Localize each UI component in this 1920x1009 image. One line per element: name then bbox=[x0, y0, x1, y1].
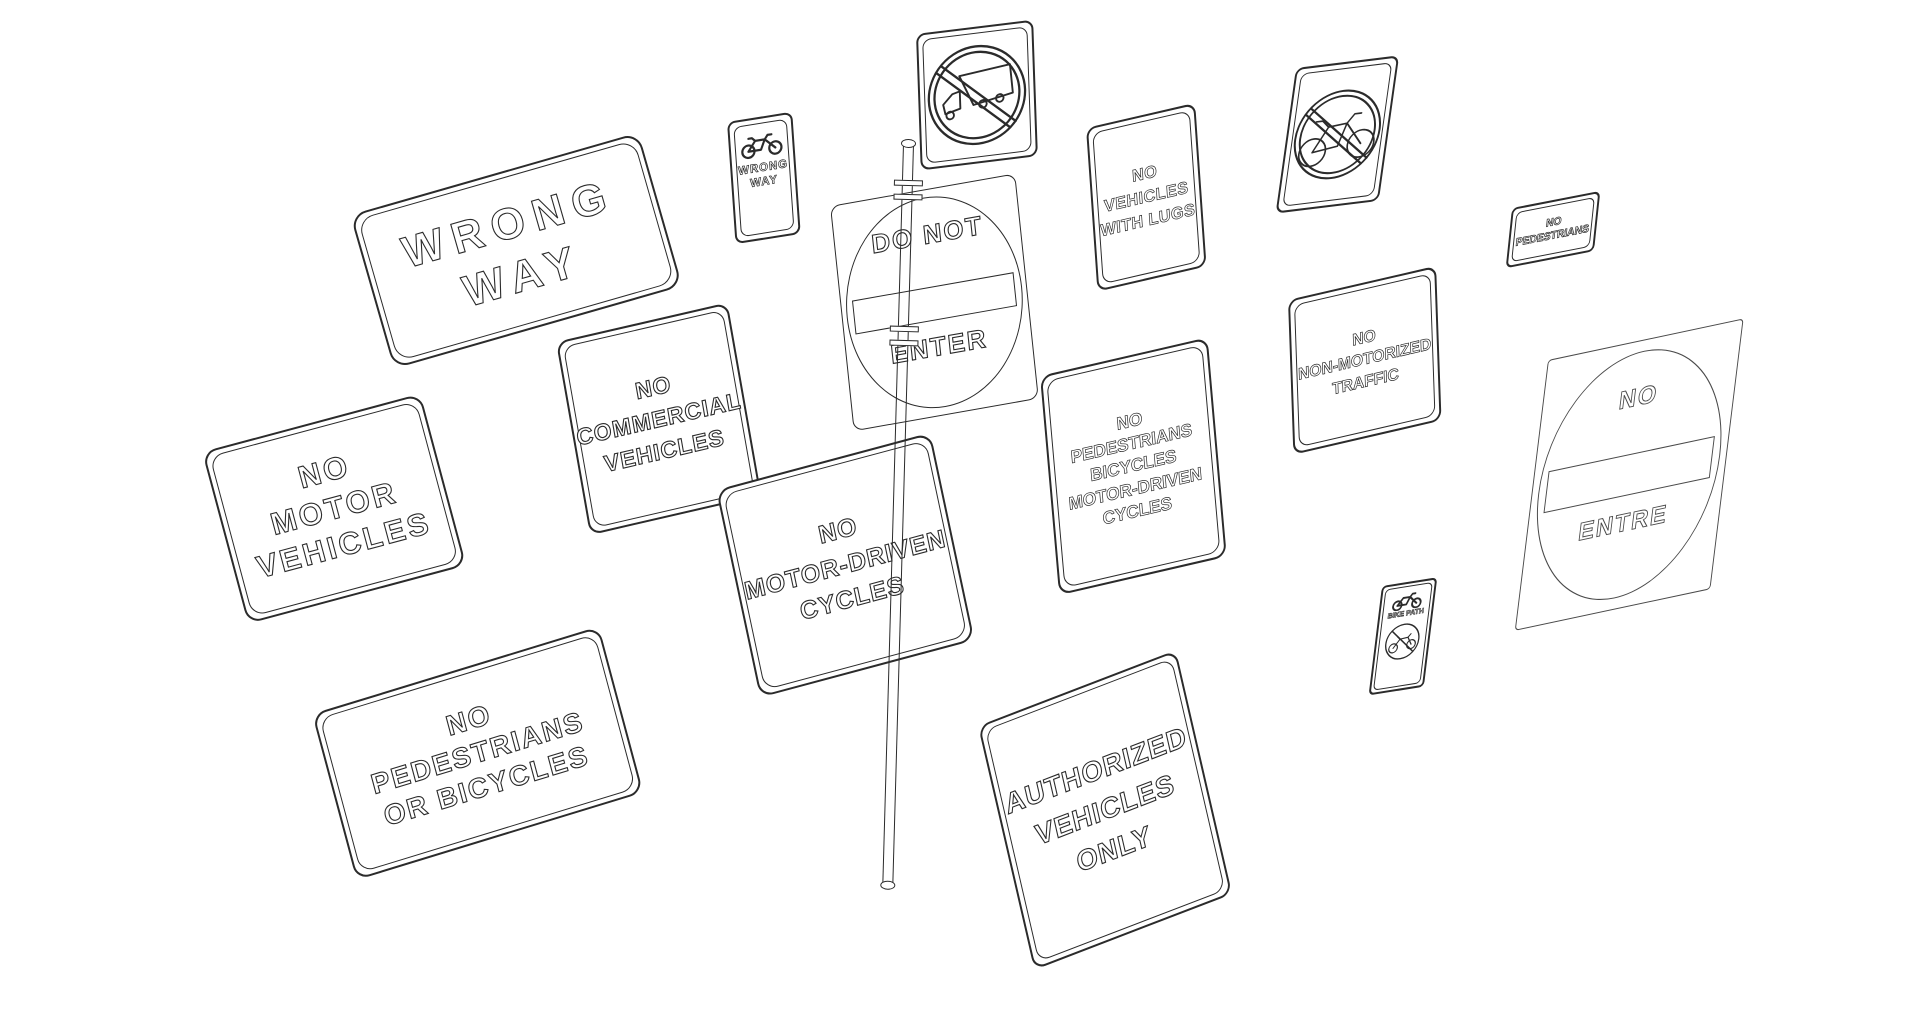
sign-no-pedestrians: NO PEDESTRIANS bbox=[1506, 191, 1601, 268]
sign-no-motor-vehicles: NO MOTOR VEHICLES bbox=[202, 394, 466, 624]
bicycle-icon bbox=[739, 127, 784, 160]
sign-bike-path-no-motor-driven-cycles: BIKE PATH bbox=[1369, 577, 1438, 695]
sign-text: NO PEDESTRIANS BICYCLES MOTOR-DRIVEN CYC… bbox=[1042, 340, 1225, 593]
pole-top-cap bbox=[901, 139, 916, 148]
sign-no-trucks bbox=[916, 20, 1038, 171]
pole-mounting-clamp bbox=[890, 326, 919, 333]
pole-mounting-clamp bbox=[889, 340, 918, 347]
sign-text: BIKE PATH bbox=[1371, 580, 1435, 693]
sign-text-line: NO bbox=[633, 369, 673, 405]
pole-mounting-clamp bbox=[893, 194, 922, 201]
sign-bicycle-wrong-way: WRONG WAY bbox=[727, 112, 801, 244]
sign-no-entre: NO ENTRE bbox=[1515, 318, 1744, 630]
sign-text: NO MOTOR VEHICLES bbox=[204, 396, 463, 622]
sign-text: WRONG WAY bbox=[729, 114, 798, 242]
no-motor-driven-cycles-symbol-icon bbox=[1380, 617, 1425, 665]
sign-text: AUTHORIZED VEHICLES ONLY bbox=[980, 653, 1230, 968]
sign-no-bicycles bbox=[1276, 55, 1400, 213]
sign-text-line: NO bbox=[1131, 161, 1158, 187]
sign-text: NO PEDESTRIANS OR BICYCLES bbox=[314, 629, 641, 878]
sign-text: NO VEHICLES WITH LUGS bbox=[1088, 105, 1204, 289]
no-bicycles-symbol-icon bbox=[1278, 58, 1397, 212]
sign-no-non-motorized-traffic: NO NON-MOTORIZED TRAFFIC bbox=[1288, 266, 1442, 455]
pole-bottom-cap bbox=[880, 881, 895, 890]
sign-no-vehicles-with-lugs: NO VEHICLES WITH LUGS bbox=[1086, 103, 1207, 292]
sign-text-line: NO bbox=[1352, 326, 1376, 351]
sign-collection-canvas: WRONG WAY WRONG WAY DO NOT bbox=[0, 0, 1920, 1009]
sign-no-pedestrians-or-bicycles: NO PEDESTRIANS OR BICYCLES bbox=[312, 626, 643, 880]
sign-authorized-vehicles-only: AUTHORIZED VEHICLES ONLY bbox=[978, 650, 1232, 970]
sign-text-line: NO bbox=[816, 511, 861, 551]
pole-mounting-clamp bbox=[894, 180, 923, 187]
sign-text: NO NON-MOTORIZED TRAFFIC bbox=[1290, 268, 1439, 452]
sign-text-line: WAY bbox=[750, 173, 779, 191]
sign-text: NO PEDESTRIANS bbox=[1508, 193, 1598, 266]
no-trucks-symbol-icon bbox=[918, 22, 1036, 168]
sign-no-pedestrians-bicycles-motor-driven-cycles: NO PEDESTRIANS BICYCLES MOTOR-DRIVEN CYC… bbox=[1040, 337, 1227, 595]
sign-do-not-enter: DO NOT ENTER bbox=[830, 173, 1039, 431]
